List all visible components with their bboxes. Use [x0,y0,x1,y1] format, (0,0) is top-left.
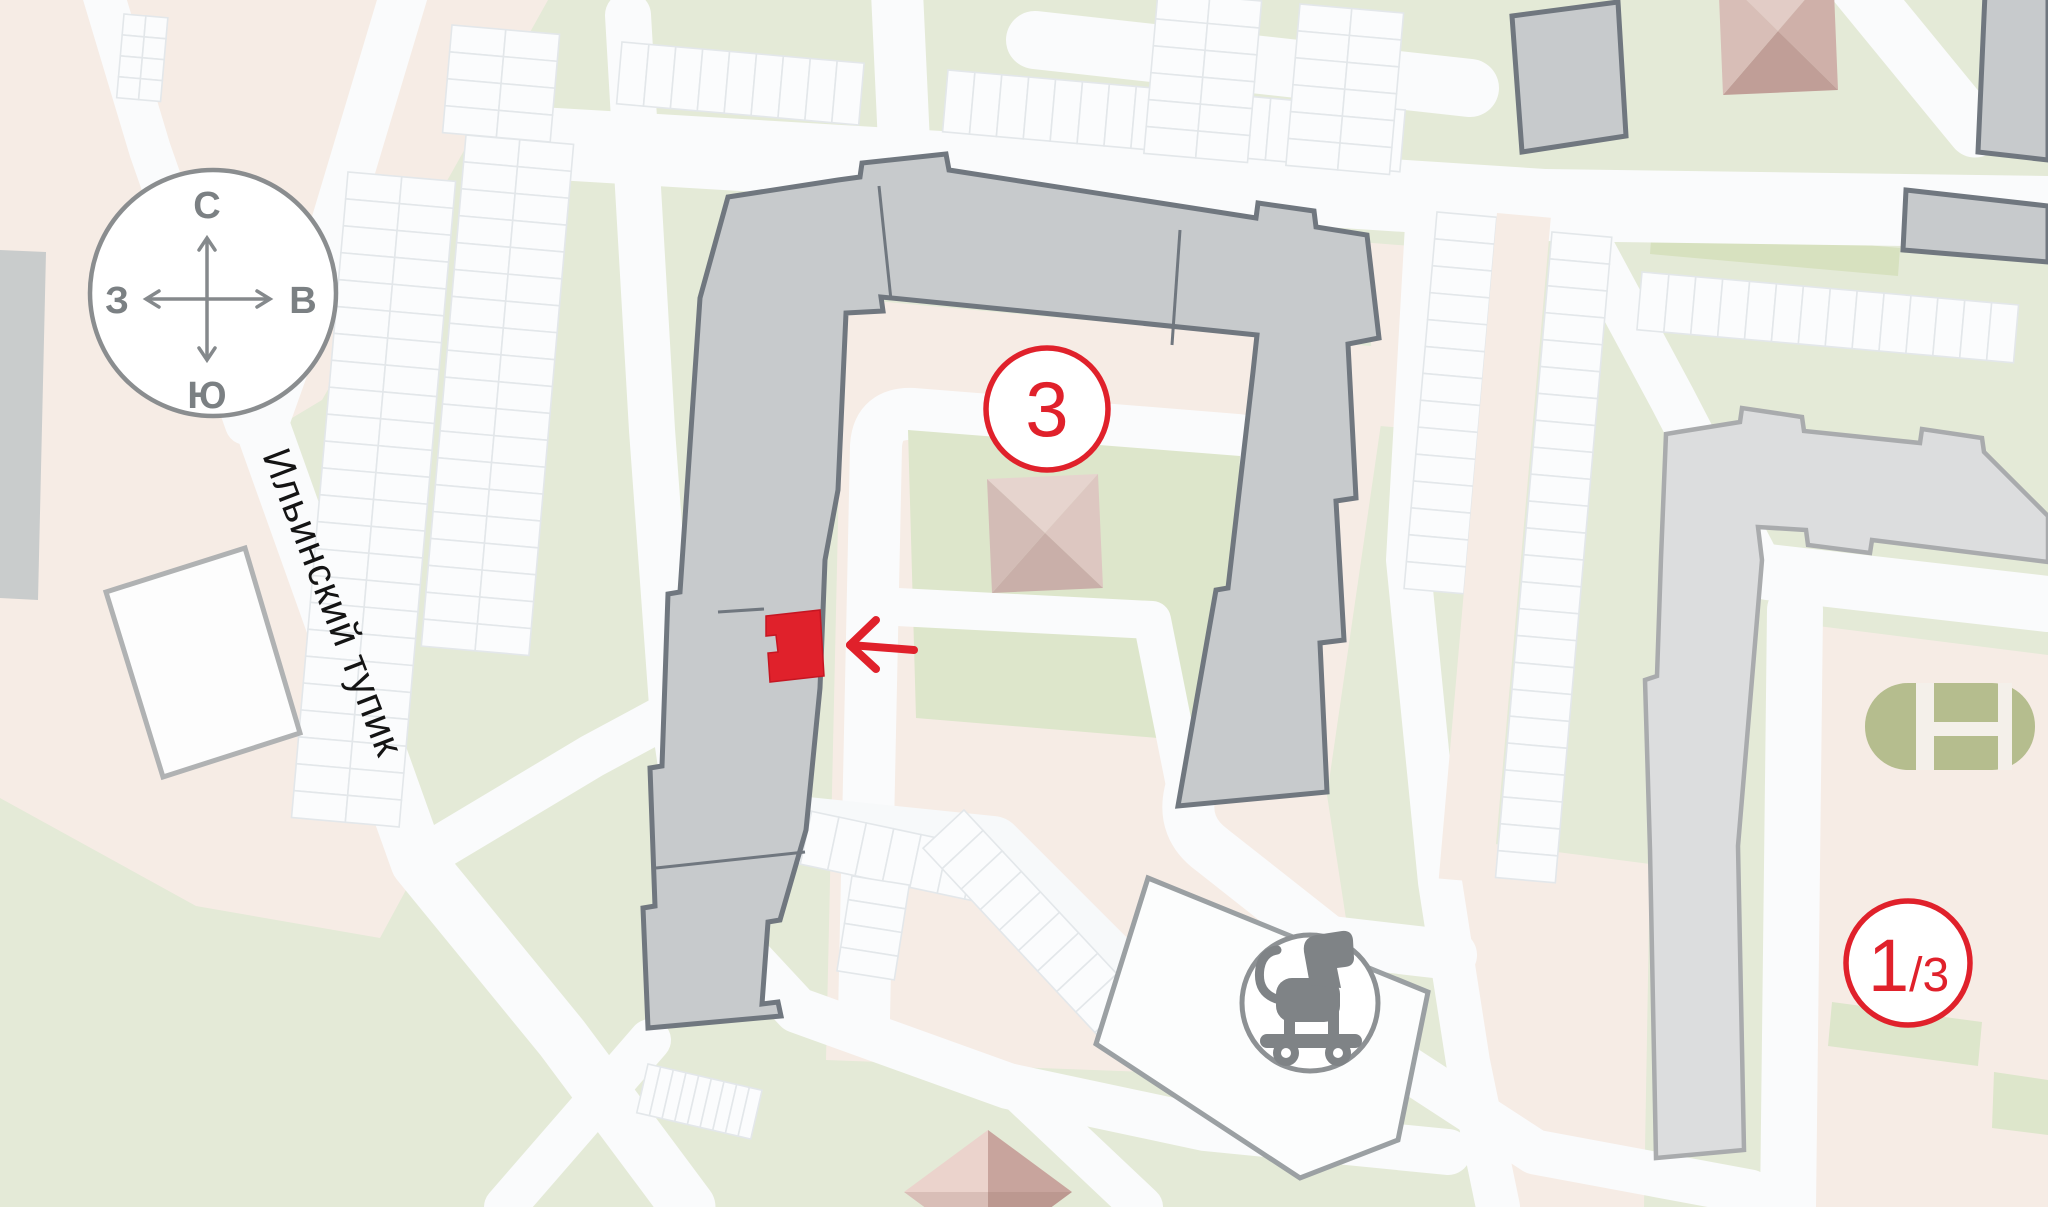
building-3-number: 3 [1025,365,1068,453]
parking-lot [117,14,168,102]
neighbor-building[interactable] [1978,0,2048,160]
map-canvas: С Ю З В Ильинский тупик 3 1/3 [0,0,2048,1207]
parking-lot [1286,4,1404,174]
building-1-3-badge[interactable]: 1/3 [1846,901,1970,1025]
compass-west-label: З [105,280,129,322]
pyramid-roof-icon [987,474,1103,593]
pyramid-roof-icon [1718,0,1838,95]
side-building [0,250,46,600]
playground-marker [1242,931,1378,1071]
neighbor-building[interactable] [1512,2,1626,152]
building-3-badge[interactable]: 3 [986,348,1108,470]
parking-lot [1144,0,1262,162]
compass-east-label: В [289,280,316,322]
compass-north-label: С [193,185,220,227]
parking-lot [443,25,560,142]
compass: С Ю З В [90,170,336,417]
site-plan-map: С Ю З В Ильинский тупик 3 1/3 [0,0,2048,1207]
compass-south-label: Ю [187,375,226,417]
stadium-court-shape [1865,683,2035,770]
